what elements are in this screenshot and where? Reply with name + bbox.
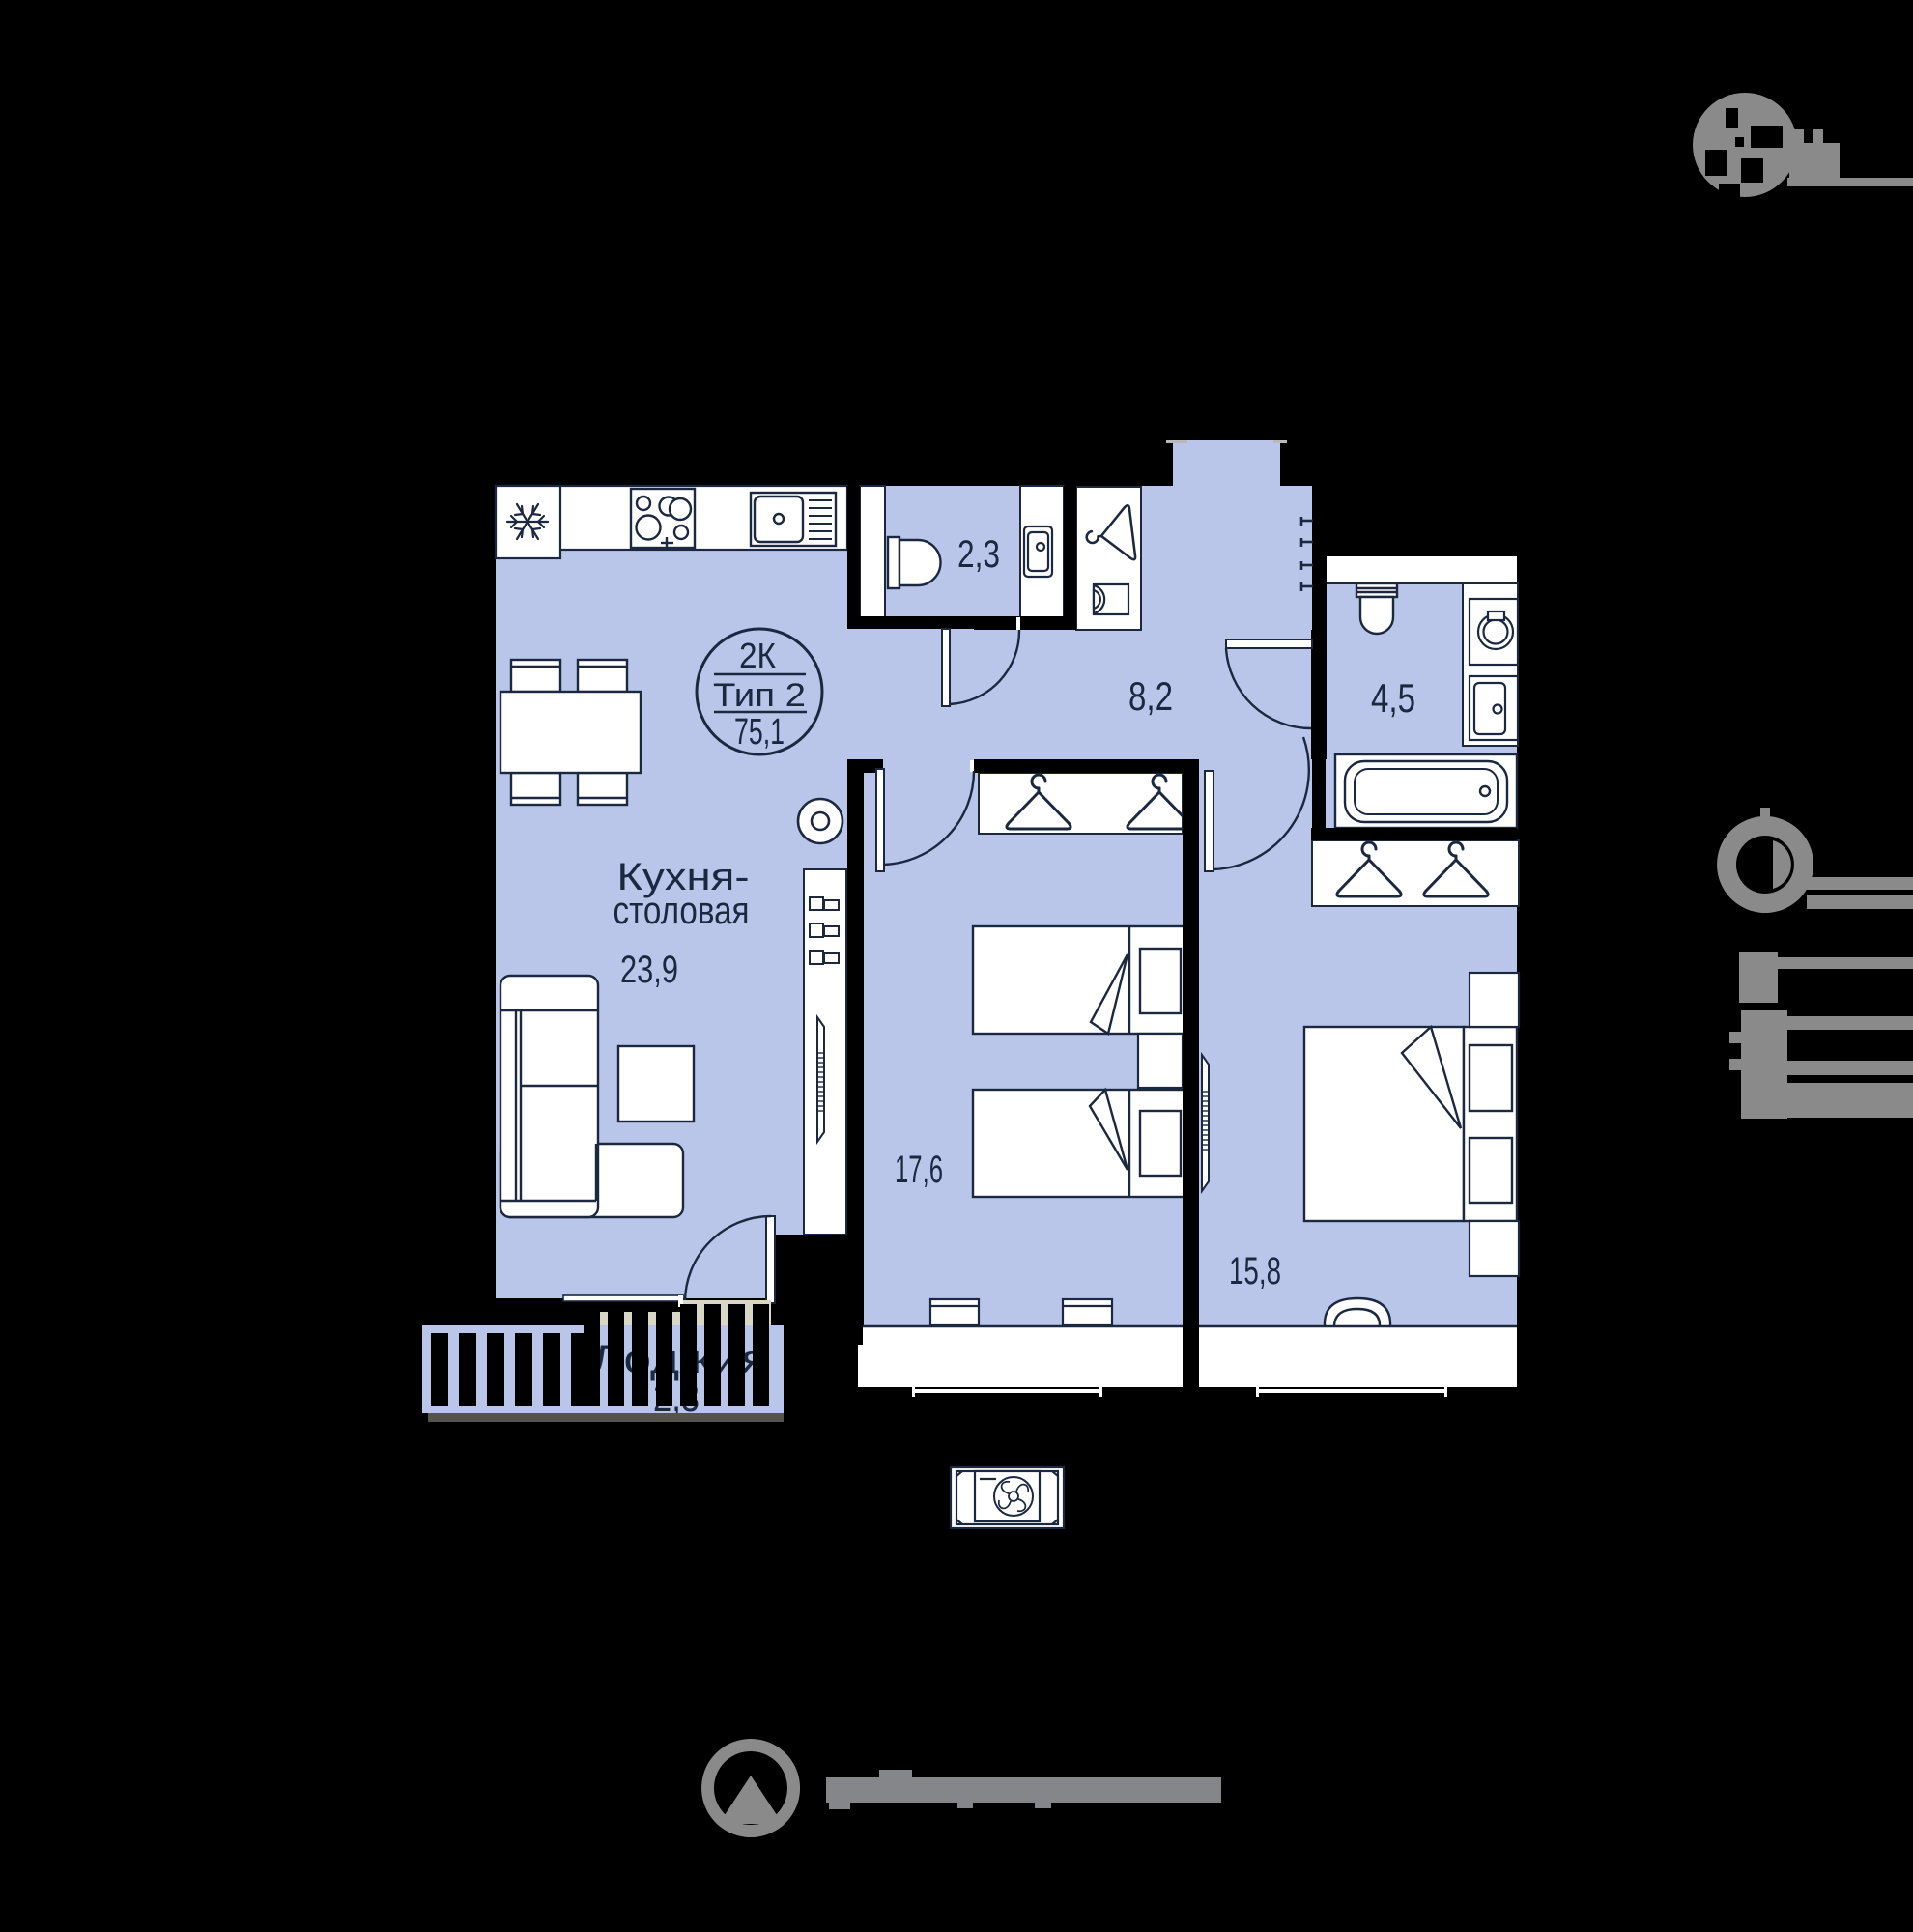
- svg-text:2,3: 2,3: [957, 533, 1000, 576]
- svg-text:15,8: 15,8: [1229, 1250, 1281, 1293]
- svg-text:75,1: 75,1: [734, 712, 785, 753]
- svg-text:17,6: 17,6: [895, 1149, 943, 1191]
- svg-text:2К: 2К: [739, 636, 776, 675]
- svg-text:столовая: столовая: [614, 890, 750, 932]
- svg-text:8,2: 8,2: [1128, 673, 1173, 719]
- svg-text:23,9: 23,9: [620, 949, 678, 991]
- svg-text:Тип 2: Тип 2: [713, 677, 806, 714]
- svg-text:4,5: 4,5: [1371, 675, 1415, 721]
